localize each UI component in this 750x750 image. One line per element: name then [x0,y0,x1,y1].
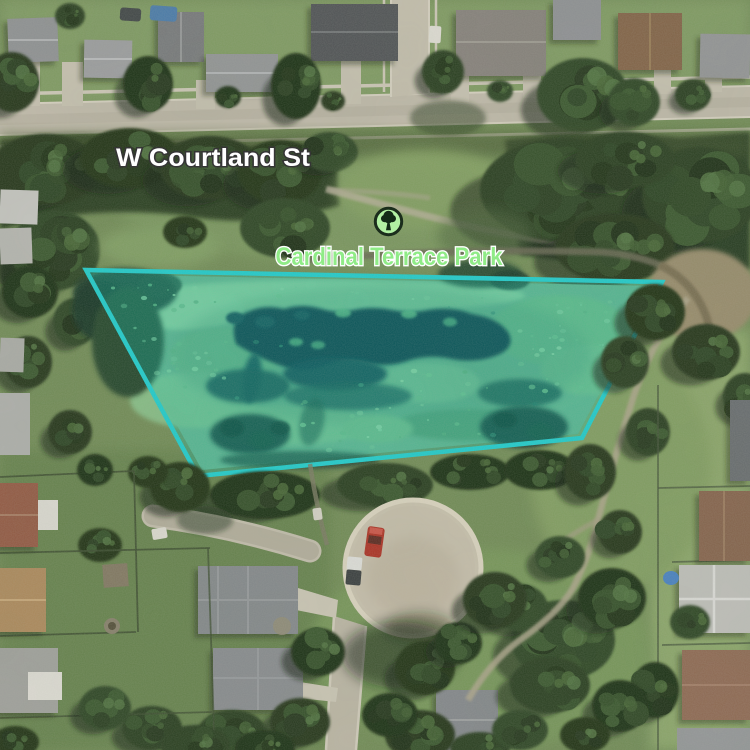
svg-text:W Courtland St: W Courtland St [116,144,311,172]
svg-text:Cardinal Terrace Park: Cardinal Terrace Park [276,243,503,271]
